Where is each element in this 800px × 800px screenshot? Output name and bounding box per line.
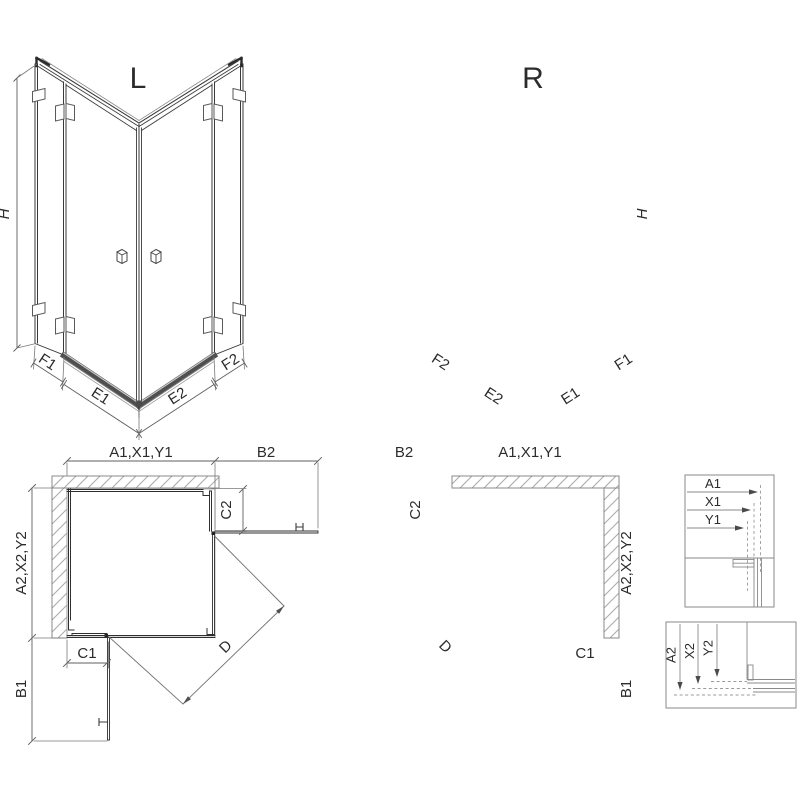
plan-left-dim-c2: C2 — [218, 500, 235, 519]
iso-right-dim-e1: E1 — [558, 384, 583, 408]
shower-enclosure-drawing: L H F1 E1 E2 F2 R H F2 E2 E1 F1 A1,X1,Y1… — [0, 0, 800, 800]
plan-right-dim-c1: C1 — [575, 645, 594, 662]
iso-left-dim-f1: F1 — [35, 350, 59, 374]
plan-left-dim-a1x1y1: A1,X1,Y1 — [109, 444, 172, 461]
iso-right-dim-f1: F1 — [612, 350, 636, 374]
iso-left-dim-f2: F2 — [219, 350, 243, 374]
plan-right-dim-b2: B2 — [395, 444, 413, 461]
iso-right-dim-f2: F2 — [428, 350, 452, 374]
plan-view-left: A1,X1,Y1 B2 C2 A2,X2,Y2 C1 B1 D — [13, 444, 322, 745]
plan-right-dim-b1: B1 — [618, 680, 635, 698]
iso-right-title: R — [522, 62, 544, 95]
plan-right-dim-c2: C2 — [407, 500, 424, 519]
iso-structure-left — [14, 58, 248, 440]
detail-dim-a1: A1 — [705, 476, 721, 491]
plan-right-dim-a2x2y2: A2,X2,Y2 — [618, 531, 635, 594]
plan-left-dim-a2x2y2: A2,X2,Y2 — [13, 531, 30, 594]
plan-view-right: B2 A1,X1,Y1 C2 A2,X2,Y2 C1 B1 D — [395, 444, 800, 745]
iso-left-title: L — [130, 62, 147, 95]
plan-left-dim-d: D — [216, 637, 236, 657]
detail-a2-panel: A2 X2 Y2 — [664, 622, 797, 708]
plan-structure-left — [29, 458, 322, 745]
iso-left-dim-h: H — [0, 208, 13, 219]
plan-left-dim-c1: C1 — [77, 645, 96, 662]
wall-top-right-plan — [452, 476, 619, 488]
plan-right-dim-d: D — [435, 637, 455, 657]
iso-view-right: R H F2 E2 E1 F1 — [428, 58, 800, 440]
iso-view-left: L H F1 E1 E2 F2 — [0, 58, 247, 440]
detail-dim-a2: A2 — [664, 647, 679, 663]
plan-left-dim-b1: B1 — [13, 680, 30, 698]
detail-a1-panel: A1 X1 Y1 — [685, 475, 774, 607]
plan-right-dim-a1x1y1: A1,X1,Y1 — [498, 444, 561, 461]
wall-top-left-plan — [52, 476, 219, 488]
wall-side-right-plan — [604, 488, 619, 638]
detail-dim-x2: X2 — [682, 643, 697, 659]
detail-dim-x1: X1 — [705, 494, 721, 509]
plan-left-dim-b2: B2 — [257, 444, 275, 461]
detail-dim-y1: Y1 — [705, 512, 721, 527]
technical-drawing-page: L H F1 E1 E2 F2 R H F2 E2 E1 F1 A1,X1,Y1… — [0, 0, 800, 800]
iso-right-dim-h: H — [634, 208, 651, 219]
iso-right-dim-e2: E2 — [481, 384, 506, 408]
wall-side-left-plan — [52, 488, 67, 638]
detail-dim-y2: Y2 — [701, 640, 716, 656]
